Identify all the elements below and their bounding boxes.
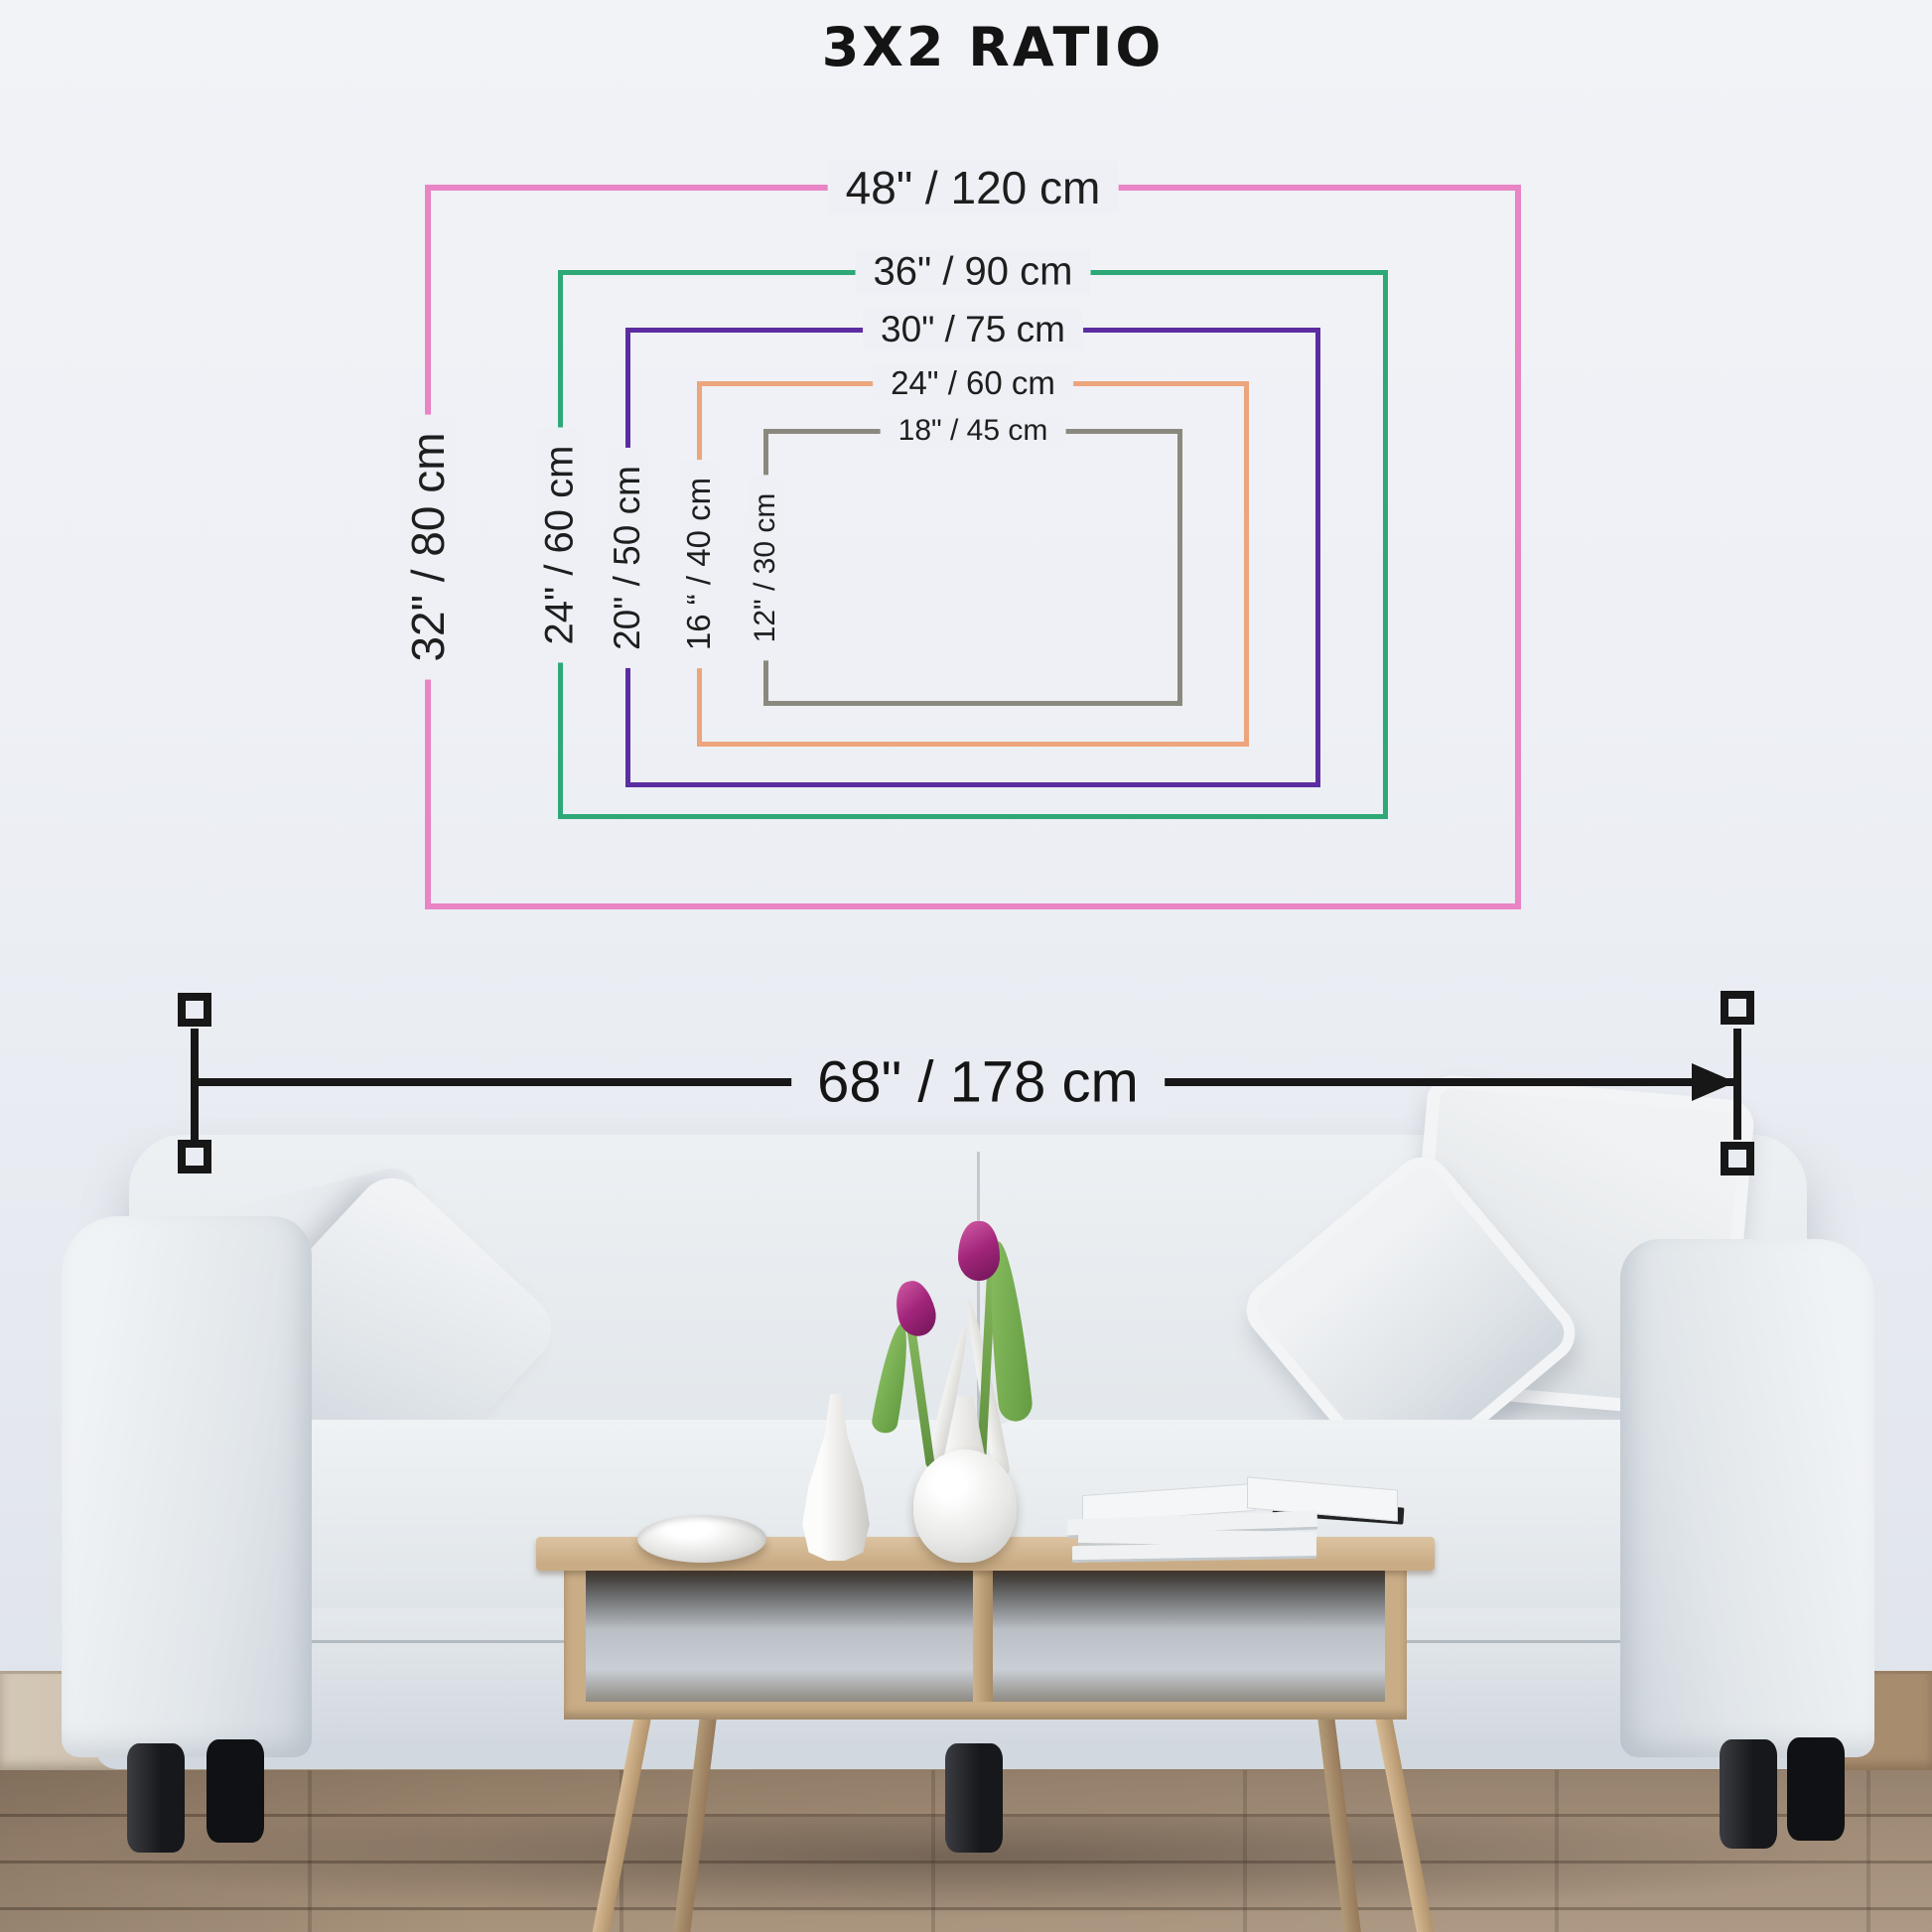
sofa-width-label: 68" / 178 cm [791, 1049, 1165, 1116]
size-guide-image: 48" / 120 cm 32" / 80 cm 36" / 90 cm 24"… [0, 0, 1932, 1932]
coffee-table-shelf-divider [973, 1571, 993, 1702]
endpoint-handle-icon [178, 1140, 211, 1173]
decor-bowl [637, 1515, 766, 1563]
sofa-leg [1787, 1737, 1845, 1841]
size-width-label: 18" / 45 cm [881, 414, 1066, 448]
size-width-label: 48" / 120 cm [828, 161, 1119, 214]
size-frame-18x12: 18" / 45 cm 12" / 30 cm [763, 429, 1182, 706]
size-height-label: 16 “ / 40 cm [680, 460, 718, 668]
size-width-label: 36" / 90 cm [856, 250, 1091, 295]
tulip-flower [958, 1221, 1000, 1281]
coffee-table-shelf [564, 1571, 1407, 1720]
measurement-endcap-right [1733, 1029, 1741, 1140]
size-width-label: 24" / 60 cm [873, 364, 1073, 402]
page-title: 3X2 RATIO [822, 16, 1165, 78]
arrowhead-right-icon [1692, 1063, 1735, 1101]
size-width-label: 30" / 75 cm [863, 309, 1083, 350]
sofa-leg [207, 1739, 264, 1843]
size-height-label: 12" / 30 cm [749, 475, 782, 660]
sofa-armrest-left [62, 1216, 312, 1757]
endpoint-handle-icon [1721, 991, 1754, 1025]
sofa-leg [945, 1743, 1003, 1853]
measurement-endcap-left [191, 1029, 199, 1140]
sofa-leg [127, 1743, 185, 1853]
size-height-label: 32" / 80 cm [401, 414, 455, 679]
endpoint-handle-icon [178, 993, 211, 1027]
tulip-vase [913, 1449, 1017, 1563]
size-height-label: 20" / 50 cm [607, 448, 648, 668]
endpoint-handle-icon [1721, 1142, 1754, 1175]
size-height-label: 24" / 60 cm [538, 427, 583, 662]
sofa-leg [1720, 1739, 1777, 1849]
sofa-armrest-right [1620, 1239, 1874, 1757]
